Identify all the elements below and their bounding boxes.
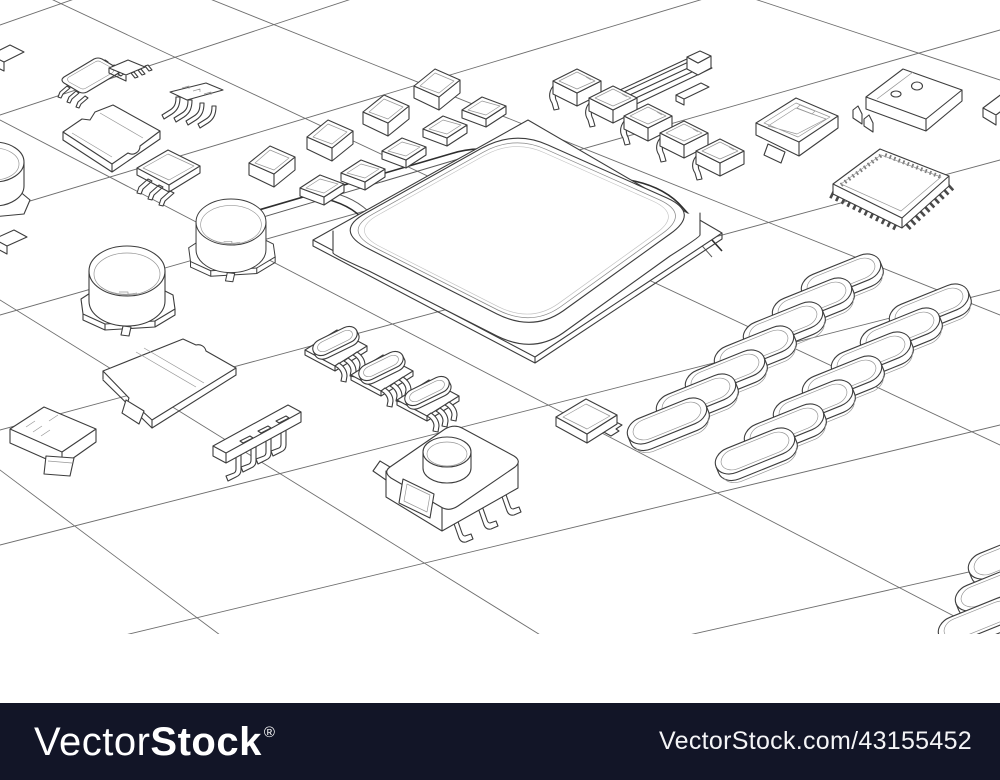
capsule-array-partial (934, 528, 1000, 657)
qfp-chip (831, 149, 952, 228)
flat-smd-box (341, 160, 385, 190)
capsule-array (623, 249, 976, 488)
flat-smd-box (462, 97, 506, 127)
electrolytic-capacitor-partial (0, 142, 30, 217)
sot-chip (109, 60, 152, 81)
electrolytic-capacitor (81, 246, 175, 336)
tall-smd-box (363, 95, 409, 136)
vectorstock-logo: VectorStock® (34, 722, 275, 762)
flat-smd-box (300, 175, 344, 205)
flat-smd-box (423, 116, 467, 146)
fuse-card (103, 339, 236, 428)
edge-partial-box-right (983, 93, 1000, 125)
stock-image: VectorStock® VectorStock.com/43155452 (0, 0, 1000, 780)
small-smd-chip (556, 399, 622, 443)
open-socket (756, 98, 838, 163)
tall-smd-box (414, 69, 460, 110)
tall-smd-box (249, 146, 295, 187)
crystal-module (853, 69, 962, 132)
watermark-bar: VectorStock® VectorStock.com/43155452 (0, 703, 1000, 780)
edge-partial-box-mid (0, 230, 27, 254)
pin-connector (162, 83, 223, 128)
tall-smd-box (307, 120, 353, 161)
sot-chip (137, 150, 200, 206)
flat-card (63, 105, 160, 172)
brand-stock: Stock (150, 720, 261, 764)
watermark-url: VectorStock.com/43155452 (659, 727, 972, 756)
edge-connector (10, 407, 96, 476)
brand-vector: Vector (34, 720, 150, 764)
registered-mark: ® (264, 724, 276, 741)
edge-partial-box-top (0, 45, 24, 71)
circuit-board-illustration (0, 0, 1000, 780)
electrolytic-capacitor (189, 199, 275, 282)
pin-header (213, 405, 301, 481)
push-button (373, 426, 521, 542)
